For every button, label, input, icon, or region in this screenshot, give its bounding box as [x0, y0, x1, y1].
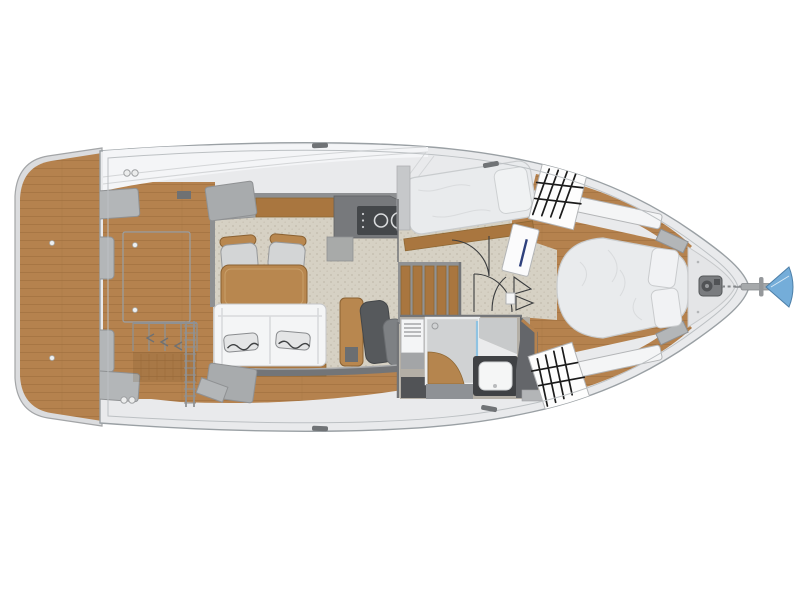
stair-tread: [449, 266, 458, 320]
platform-plug-dot: [50, 241, 55, 246]
helm-seat-inset: [345, 347, 358, 362]
faucet: [493, 384, 497, 388]
companionway-stairs: [398, 262, 460, 324]
master-pillow: [647, 247, 679, 288]
boat-floorplan-stage: [0, 0, 800, 600]
cooktop-knob: [362, 219, 364, 221]
windlass-motor: [714, 279, 720, 285]
anchor: [735, 267, 793, 307]
galley-sink-unit: [327, 237, 353, 261]
anchor-stock: [759, 277, 764, 297]
windlass-axle: [705, 284, 709, 288]
stern-fairlead: [132, 170, 138, 176]
dinette-table: [221, 265, 307, 309]
head-dark-locker: [401, 377, 429, 398]
interior: [86, 144, 761, 423]
sofa: [214, 304, 326, 376]
head-mat: [426, 384, 473, 399]
swim-platform: [15, 148, 102, 426]
guest-shelf: [397, 166, 410, 230]
sofa-pillow: [275, 331, 310, 351]
swim-platform-teak: [20, 153, 102, 421]
master-pillow: [650, 287, 682, 328]
guest-pillow: [493, 166, 532, 215]
platform-plug-dot: [50, 356, 55, 361]
head: [400, 316, 546, 401]
stern-fairlead: [129, 397, 135, 403]
door-latch: [506, 293, 515, 304]
head-locker: [401, 353, 424, 369]
cockpit-console: [177, 191, 191, 199]
sofa-pillow: [223, 333, 258, 353]
stair-tread: [437, 266, 446, 320]
stair-tread: [401, 266, 410, 320]
stair-tread: [425, 266, 434, 320]
hatch-lift-ring: [133, 308, 138, 313]
stern-fairlead: [121, 397, 127, 403]
hatch-lift-ring: [133, 243, 138, 248]
stern-fairlead: [124, 170, 130, 176]
stair-tread: [413, 266, 422, 320]
cooktop-knob: [362, 213, 364, 215]
anchor-fluke: [766, 267, 793, 307]
cooktop-knob: [362, 226, 364, 228]
saloon-corner-bench-port: [205, 181, 257, 221]
cleat: [312, 426, 328, 432]
boat-floorplan: [0, 0, 800, 600]
galley-upper-cabinet: [256, 198, 334, 217]
deck-screw: [697, 261, 700, 264]
lower-deck: [397, 159, 761, 412]
cleat: [312, 143, 328, 149]
deck-screw: [697, 311, 700, 314]
